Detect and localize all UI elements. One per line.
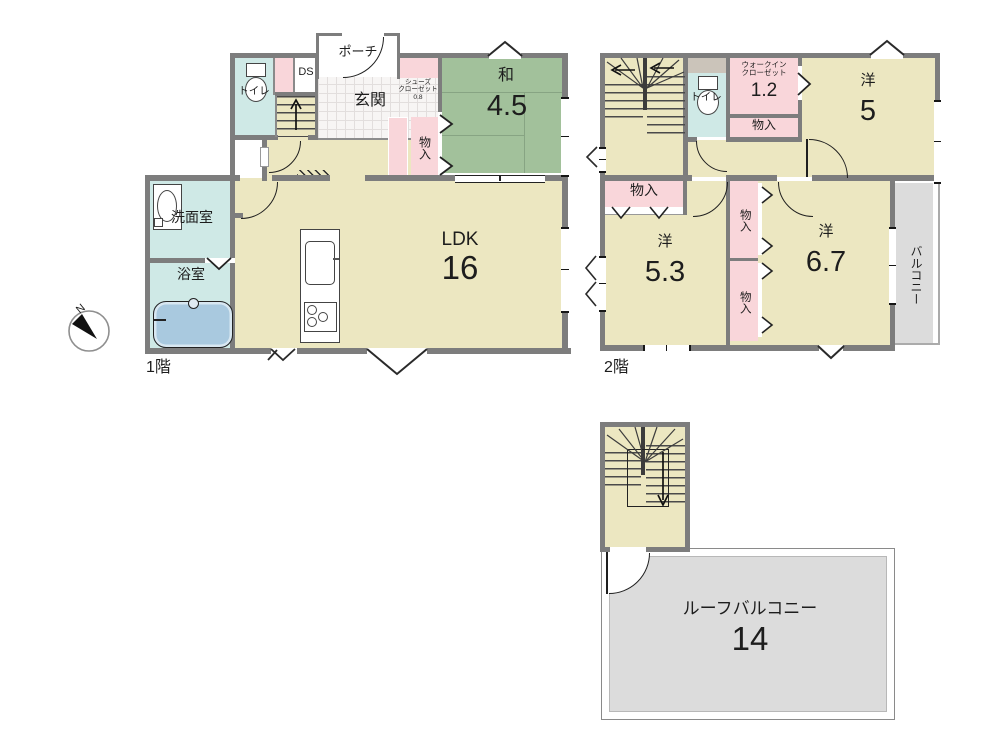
shoes-closet — [400, 58, 438, 78]
roof-balcony-label: ルーフバルコニー — [640, 599, 860, 618]
door-leaf — [806, 139, 808, 177]
storage-1f-strip — [388, 117, 408, 179]
casement-window-icon — [585, 281, 597, 307]
stairs-arrow — [607, 64, 637, 76]
balcony-rail — [895, 343, 940, 345]
wall — [726, 137, 802, 142]
wall — [384, 33, 400, 36]
bathtub-drain — [188, 298, 199, 309]
window — [889, 227, 896, 305]
compass-icon — [66, 308, 112, 354]
toilet-label-2f: トイレ — [684, 92, 728, 104]
wall — [316, 33, 342, 36]
shoes-line3: 0.8 — [413, 94, 422, 101]
closet-door-icon — [761, 237, 773, 255]
wall — [646, 547, 690, 552]
balcony-label: バルコニー — [902, 215, 930, 335]
wall — [365, 175, 442, 181]
casement-window-icon — [586, 146, 598, 168]
closet-strip-1f — [275, 58, 295, 95]
shoes-line1: シューズ — [405, 79, 431, 86]
window — [599, 256, 606, 312]
wall — [726, 175, 777, 181]
shoes-closet-label: シューズクローゼット0.8 — [390, 79, 446, 101]
wall — [398, 53, 567, 58]
burner — [307, 317, 317, 327]
balcony-rail — [938, 183, 940, 343]
western67-size: 6.7 — [794, 246, 858, 278]
wall-opening — [610, 547, 646, 552]
wic-line2: クローゼット — [742, 68, 787, 77]
closet-door-icon — [439, 156, 453, 176]
wall — [275, 92, 318, 96]
bay-window-icon — [366, 348, 428, 375]
bay-window-icon — [869, 40, 905, 56]
storage-label-wic: 物入 — [730, 119, 798, 132]
storage-label-2f-b: 物入 — [730, 274, 758, 330]
bathtub-faucet — [154, 319, 166, 321]
western5-label: 洋 — [857, 73, 879, 90]
bay-window-icon — [487, 41, 523, 57]
japanese-room-size: 4.5 — [477, 90, 537, 122]
window — [561, 227, 569, 313]
wall — [315, 96, 318, 139]
sink — [305, 241, 335, 285]
burner — [307, 305, 317, 315]
stairs-down-arrow — [656, 450, 670, 508]
window — [599, 147, 606, 173]
storage-label-2f-a: 物入 — [730, 192, 758, 248]
faucet — [333, 258, 339, 260]
floor1-label: 1階 — [146, 359, 206, 377]
window — [643, 345, 691, 351]
storage-label-1f: 物入 — [411, 121, 438, 175]
closet-door-icon — [439, 114, 453, 134]
wall — [297, 175, 330, 181]
toilet-tank — [246, 63, 266, 77]
door-leaf — [606, 552, 608, 594]
stairs-up-arrow — [289, 98, 303, 132]
wall — [145, 175, 150, 354]
closet-door-icon — [761, 316, 773, 334]
wall — [272, 175, 297, 181]
ldk-room — [235, 178, 567, 353]
tatami-line — [442, 135, 524, 136]
casement-window-icon — [585, 255, 597, 281]
wall — [683, 175, 687, 215]
wic-label: ウォークインクローゼット — [730, 61, 798, 78]
wall — [275, 96, 277, 137]
pipe-space — [688, 58, 726, 73]
closet-door-icon — [797, 72, 811, 96]
closet-door-icon — [761, 262, 773, 280]
wall — [150, 175, 240, 181]
burner — [318, 312, 328, 322]
bay-window-icon — [817, 345, 845, 360]
ldk-label: LDK — [425, 229, 495, 250]
washroom-label: 洗面室 — [152, 210, 232, 226]
wall — [150, 258, 208, 263]
floor2-label: 2階 — [604, 359, 664, 377]
window — [561, 97, 569, 177]
porch-label: ポーチ — [318, 45, 398, 60]
closet-door-icon — [611, 206, 631, 219]
western67-label: 洋 — [815, 224, 837, 241]
sliding-door-tick — [499, 175, 501, 181]
door-jamb — [260, 147, 269, 167]
small-opening-icon — [270, 348, 296, 362]
japanese-room-label: 和 — [492, 67, 520, 85]
wall — [600, 175, 692, 181]
stairs-arrow — [646, 62, 676, 74]
roof-balcony-size: 14 — [710, 621, 790, 658]
closet-door-icon — [761, 186, 773, 204]
toilet-tank — [698, 76, 718, 90]
floor-plan: ポーチ DS トイレ 玄関 シューズクローゼット0.8 物入 和 4.5 LDK… — [0, 0, 1000, 750]
wall — [230, 135, 278, 140]
ds-label: DS — [293, 66, 319, 78]
western53-size: 5.3 — [633, 256, 697, 288]
window — [934, 100, 941, 184]
bathroom-label: 浴室 — [158, 267, 224, 283]
western5-size: 5 — [852, 95, 884, 127]
toilet-label-1f: トイレ — [232, 86, 276, 98]
wall — [730, 258, 758, 261]
wall — [685, 422, 690, 552]
stairs-winder-lines — [605, 427, 685, 469]
closet-door-icon — [649, 206, 669, 219]
wall — [145, 348, 571, 354]
western53-label: 洋 — [654, 234, 676, 251]
wall — [600, 547, 610, 552]
shoes-line2: クローゼット — [398, 86, 438, 93]
storage-label-2f-top: 物入 — [607, 183, 681, 199]
wic-size: 1.2 — [730, 80, 798, 101]
ldk-size: 16 — [425, 250, 495, 287]
